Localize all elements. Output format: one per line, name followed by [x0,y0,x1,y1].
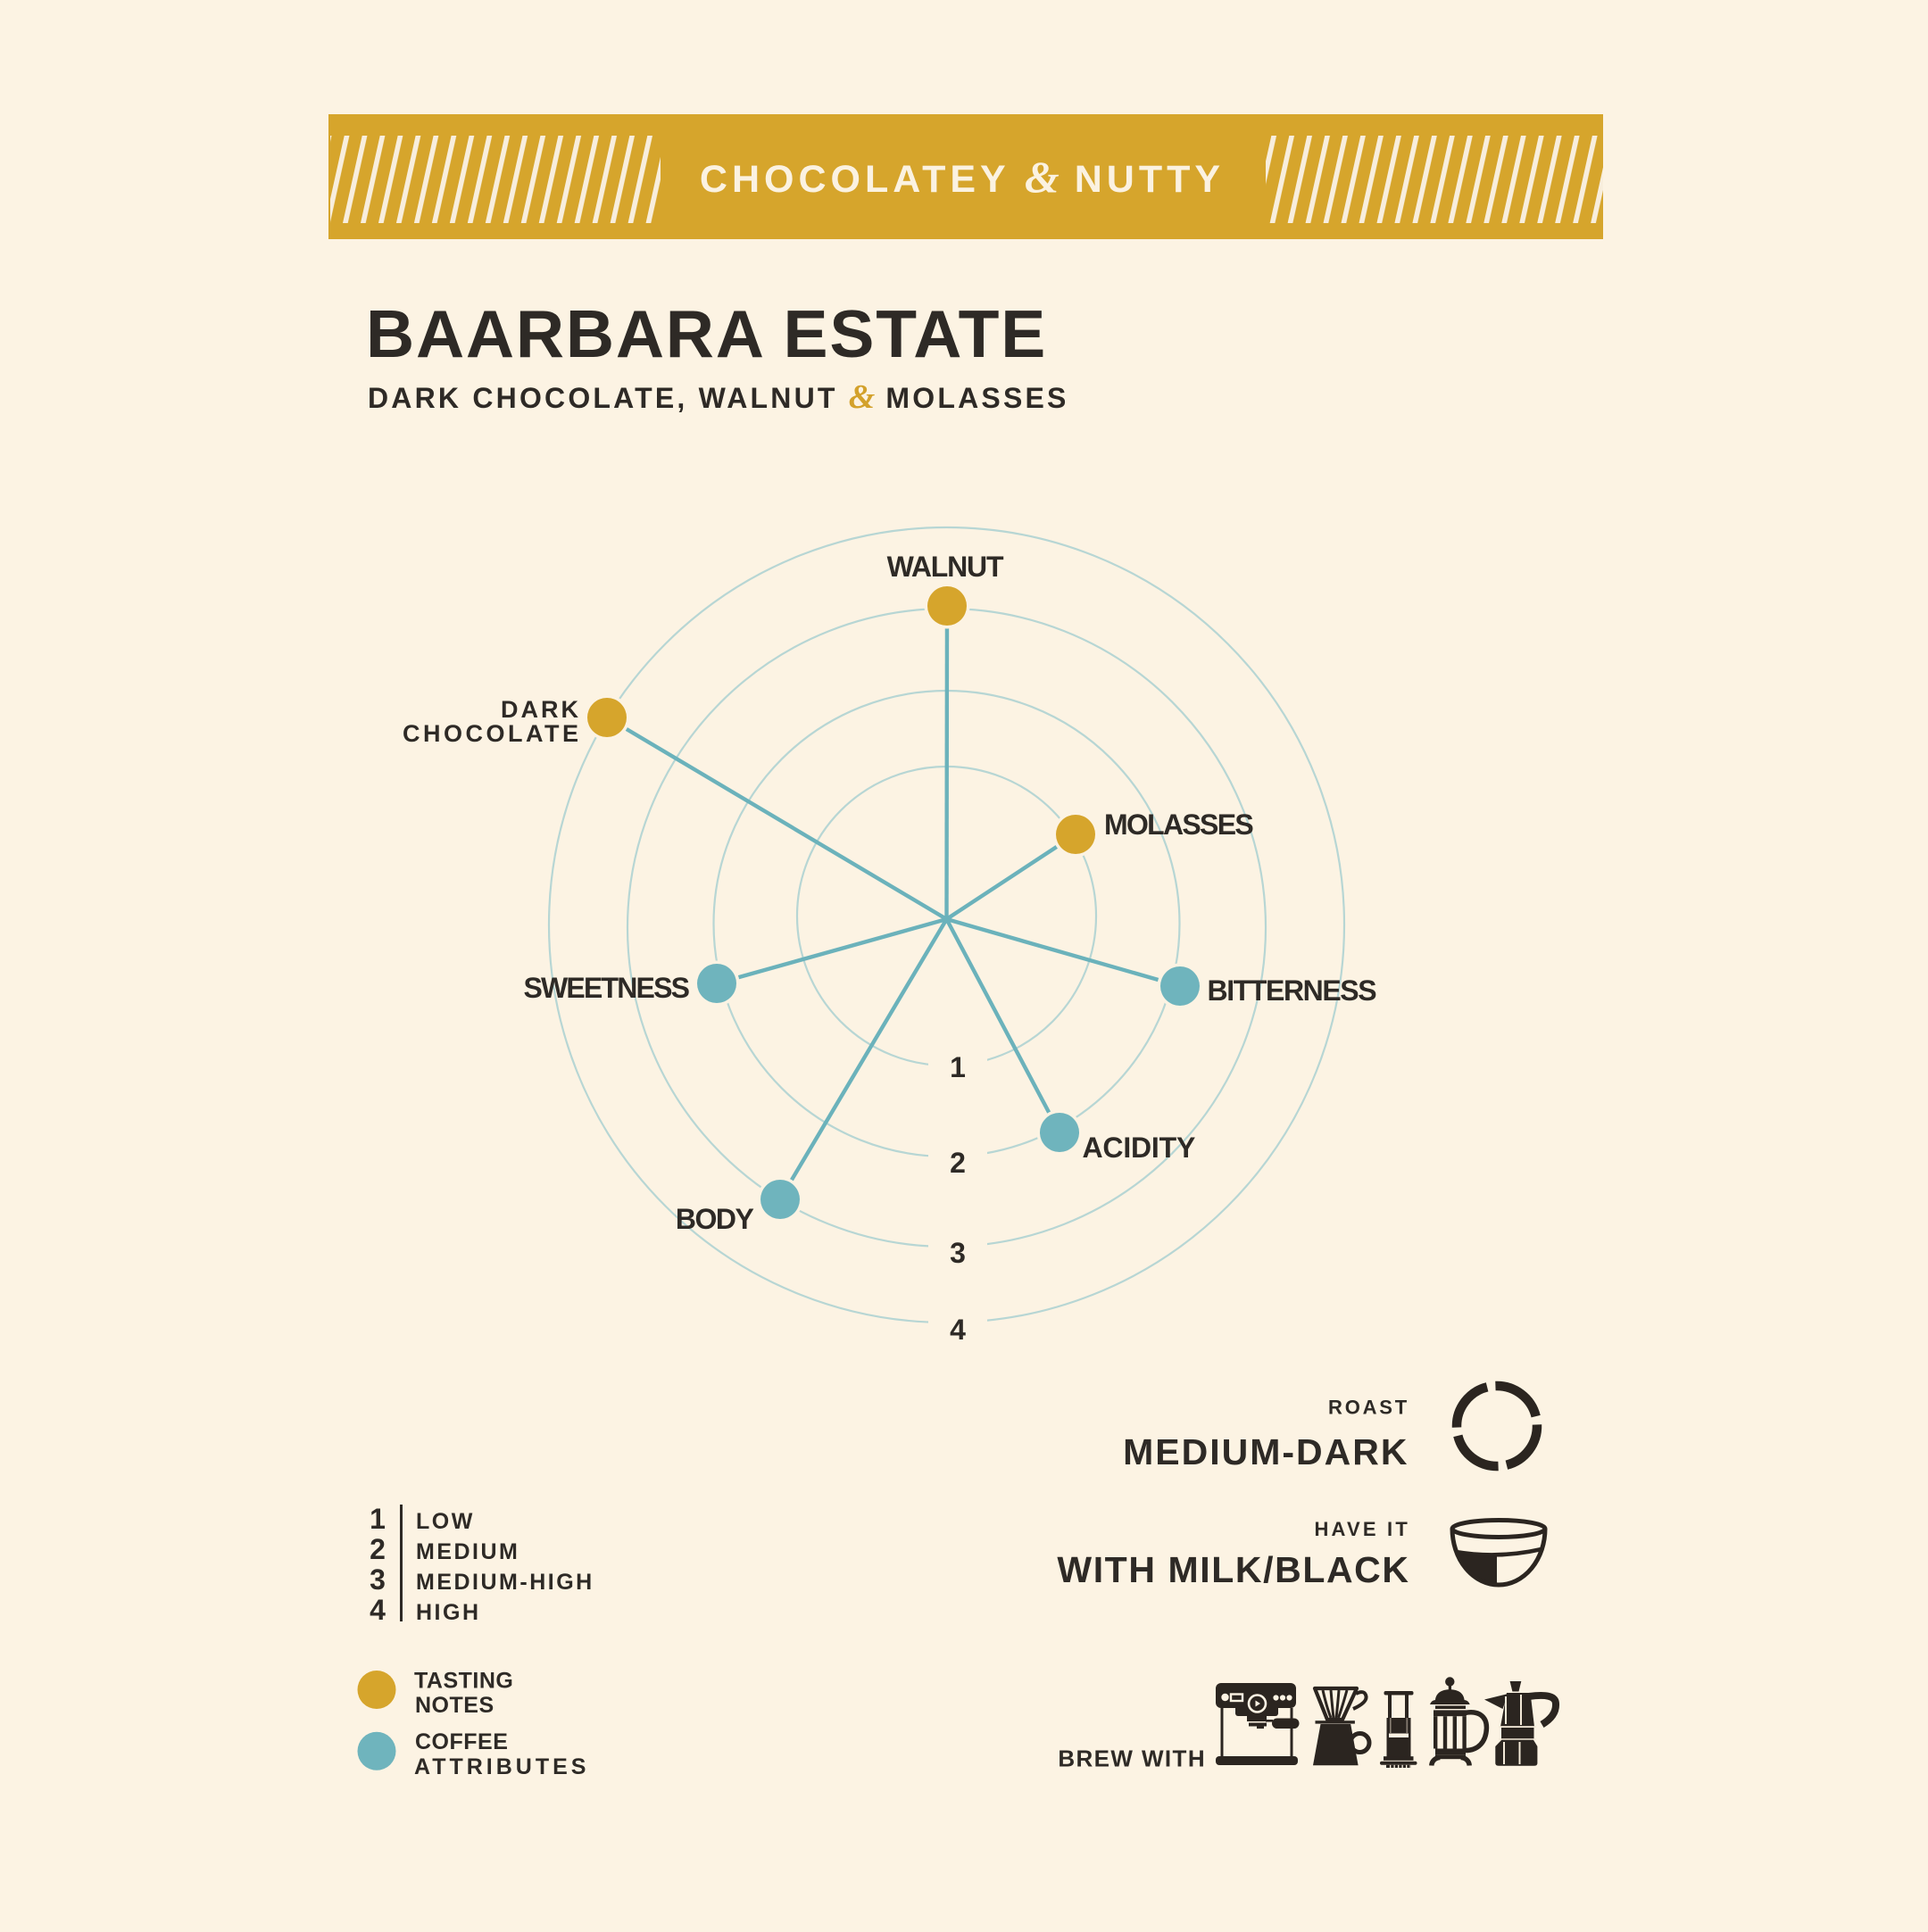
svg-text:LOW: LOW [416,1509,475,1534]
svg-text:1: 1 [950,1051,966,1083]
svg-text:3: 3 [950,1237,966,1269]
svg-text:ROAST: ROAST [1328,1397,1409,1419]
svg-text:2: 2 [370,1533,386,1565]
svg-text:MEDIUM-HIGH: MEDIUM-HIGH [416,1570,594,1595]
svg-text:BITTERNESS: BITTERNESS [1208,974,1377,1007]
svg-text:HAVE IT: HAVE IT [1314,1518,1410,1540]
svg-text:HIGH: HIGH [416,1600,481,1625]
svg-text:MEDIUM-DARK: MEDIUM-DARK [1123,1431,1409,1472]
svg-text:DARK CHOCOLATE, WALNUT & MOLAS: DARK CHOCOLATE, WALNUT & MOLASSES [368,378,1069,416]
svg-text:BREW WITH: BREW WITH [1058,1745,1206,1772]
svg-text:ATTRIBUTES: ATTRIBUTES [414,1754,589,1779]
svg-text:BAARBARA ESTATE: BAARBARA ESTATE [366,296,1047,371]
svg-text:TASTING: TASTING [414,1669,513,1694]
svg-text:NOTES: NOTES [415,1693,494,1718]
svg-text:WITH MILK/BLACK: WITH MILK/BLACK [1057,1549,1409,1590]
svg-text:CHOCOLATE: CHOCOLATE [403,720,582,747]
svg-text:4: 4 [950,1314,966,1346]
svg-text:MOLASSES: MOLASSES [1104,808,1253,841]
svg-text:3: 3 [370,1563,386,1596]
svg-text:CHOCOLATEY & NUTTY: CHOCOLATEY & NUTTY [700,152,1225,202]
svg-text:COFFEE: COFFEE [415,1729,508,1754]
svg-text:WALNUT: WALNUT [887,551,1004,583]
svg-text:ACIDITY: ACIDITY [1083,1132,1196,1164]
svg-text:4: 4 [370,1594,386,1626]
svg-text:BODY: BODY [676,1203,754,1235]
svg-text:DARK: DARK [501,696,581,723]
svg-text:1: 1 [370,1503,386,1535]
svg-text:2: 2 [950,1147,966,1179]
svg-text:SWEETNESS: SWEETNESS [523,972,689,1004]
svg-text:MEDIUM: MEDIUM [416,1539,519,1564]
